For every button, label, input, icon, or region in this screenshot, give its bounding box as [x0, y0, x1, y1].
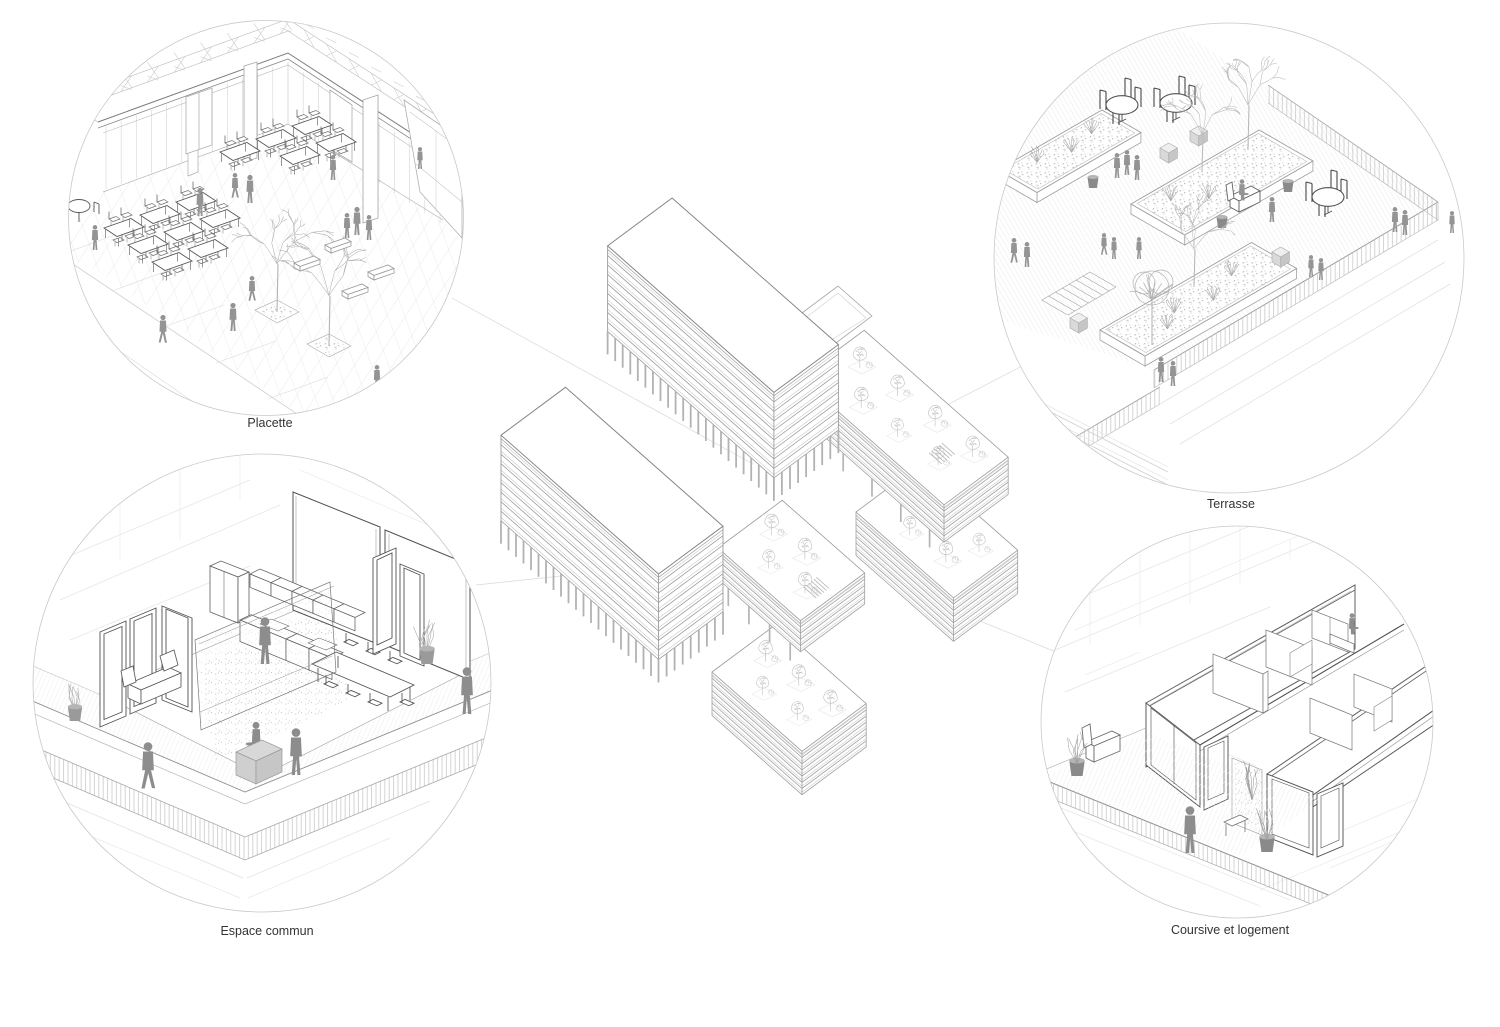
svg-text:Terrasse: Terrasse [1207, 497, 1255, 511]
svg-text:Espace commun: Espace commun [220, 924, 313, 938]
svg-text:Placette: Placette [247, 416, 292, 430]
svg-text:Coursive et logement: Coursive et logement [1171, 923, 1290, 937]
